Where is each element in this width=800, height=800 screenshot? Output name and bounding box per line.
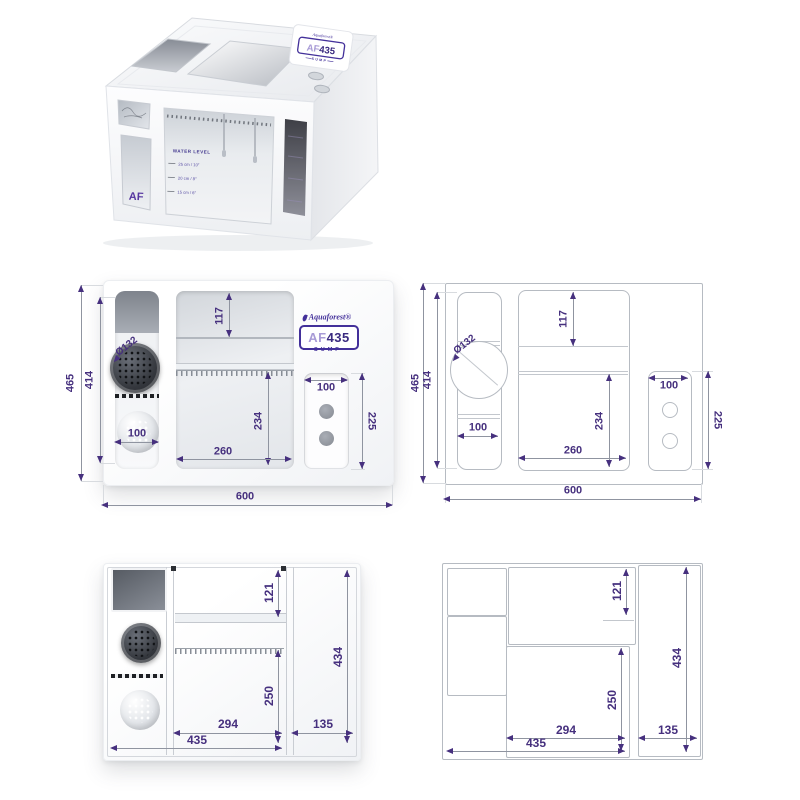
- chamber-line: [518, 371, 628, 372]
- dim-line: [100, 297, 101, 463]
- chamber-line: [457, 414, 500, 415]
- divider-wall: [173, 567, 174, 755]
- dim-arrow: [618, 648, 624, 655]
- dim-arrow: [570, 292, 576, 299]
- extension-line: [437, 468, 457, 469]
- dim-arrow: [101, 502, 108, 508]
- dim-label-left-section-width: 435: [187, 734, 207, 746]
- dim-label-sock-chamber-width: 100: [128, 429, 146, 440]
- dim-arrow: [420, 476, 426, 483]
- dim-line: [268, 372, 269, 465]
- extension-line: [423, 283, 445, 284]
- water-level-mark: 25 cm / 10″: [178, 162, 200, 168]
- dim-arrow: [570, 339, 576, 346]
- divider-wall: [293, 567, 294, 755]
- dim-line: [445, 499, 701, 500]
- top-view-render: 121 250 294 435 434 135: [85, 553, 395, 778]
- series-label: SUMP: [314, 347, 342, 353]
- dim-arrow: [606, 374, 612, 381]
- dim-line: [293, 733, 353, 734]
- filter-media-ball: [120, 690, 160, 730]
- dim-label-main-chamber-width: 294: [218, 718, 238, 730]
- dim-arrow: [518, 455, 525, 461]
- dim-line: [103, 505, 392, 506]
- media-grate: [115, 394, 159, 398]
- extension-line: [100, 463, 115, 464]
- dim-label-drip-tray-height: 117: [559, 310, 570, 328]
- dim-arrow: [344, 570, 350, 577]
- dim-arrow: [681, 375, 688, 381]
- bulkhead-hole: [662, 402, 678, 418]
- dim-arrow: [359, 373, 365, 380]
- dim-arrow: [344, 736, 350, 743]
- dim-arrow: [97, 456, 103, 463]
- dim-arrow: [457, 433, 464, 439]
- chamber-opening: [115, 291, 159, 333]
- dim-arrow: [618, 748, 625, 754]
- dim-arrow: [97, 297, 103, 304]
- dim-arrow: [78, 285, 84, 292]
- dim-line: [448, 751, 625, 752]
- dim-label-pump-recess-height: 225: [712, 411, 723, 429]
- main-chamber: [176, 291, 294, 469]
- dim-arrow: [275, 610, 281, 617]
- dim-line: [362, 373, 363, 469]
- dim-label-main-chamber-height: 234: [595, 412, 606, 430]
- dim-arrow: [226, 330, 232, 337]
- top-brand-badge: Aquaforest® AF435 SUMP: [289, 24, 354, 72]
- render-3d-image: Aquaforest® AF435 SUMP AF WATER LEVEL 25…: [88, 4, 388, 254]
- dim-label-main-chamber-width: 294: [556, 724, 576, 736]
- dim-label-pump-recess-width: 100: [660, 381, 678, 392]
- dim-line: [437, 292, 438, 468]
- ground-shadow: [103, 235, 373, 251]
- dim-line: [81, 285, 82, 481]
- dim-label-main-chamber-width: 260: [214, 447, 232, 458]
- extension-line: [81, 285, 103, 286]
- sensor-float: [253, 156, 257, 163]
- dim-line: [178, 459, 290, 460]
- dim-arrow: [275, 650, 281, 657]
- dim-arrow: [285, 456, 292, 462]
- dim-arrow: [705, 371, 711, 378]
- dim-label-drip-tray-height: 117: [215, 307, 226, 325]
- extension-line: [423, 483, 445, 484]
- dim-line: [573, 292, 574, 346]
- dim-arrow: [618, 735, 625, 741]
- dim-label-inner-depth: 434: [332, 647, 344, 667]
- dim-arrow: [506, 735, 513, 741]
- dim-arrow: [152, 439, 159, 445]
- glass-shelf: [175, 613, 286, 623]
- dim-arrow: [78, 474, 84, 481]
- dim-line: [708, 371, 709, 469]
- dim-arrow: [446, 748, 453, 754]
- dim-label-total-width: 600: [564, 486, 582, 497]
- divider-notch: [171, 566, 176, 571]
- glass-shelf: [176, 363, 294, 370]
- dim-arrow: [623, 608, 629, 615]
- dim-label-pump-recess-width: 100: [317, 383, 335, 394]
- bulkhead-hole: [319, 404, 334, 419]
- dim-label-total-width: 600: [236, 492, 254, 503]
- dim-arrow: [443, 496, 450, 502]
- dim-label-main-chamber-depth: 250: [606, 690, 618, 710]
- weir-comb: [176, 370, 294, 376]
- chamber-line: [518, 346, 628, 347]
- dim-arrow: [265, 372, 271, 379]
- dim-label-inner-height: 414: [85, 371, 96, 389]
- dim-arrow: [110, 745, 117, 751]
- dim-arrow: [275, 745, 282, 751]
- front-view-render: Ø132 100 117 234 260 Aquaforest® AF435 S…: [63, 275, 413, 523]
- front-window-small: [118, 100, 150, 129]
- dim-label-outer-height: 465: [411, 374, 422, 392]
- media-grate: [111, 674, 163, 678]
- extension-line: [692, 469, 713, 470]
- series-dash-right: [344, 349, 352, 350]
- dim-label-outer-height: 465: [66, 374, 77, 392]
- dim-label-main-chamber-depth: 250: [263, 686, 275, 706]
- dim-arrow: [275, 730, 282, 736]
- dim-arrow: [491, 433, 498, 439]
- dim-arrow: [434, 461, 440, 468]
- sock-chamber: [447, 616, 507, 696]
- sensor-float: [222, 150, 226, 157]
- inlet-chamber: [447, 568, 507, 616]
- series-dash-left: [303, 349, 311, 350]
- brand-script: Aquaforest®: [303, 313, 351, 322]
- dim-arrow: [386, 502, 393, 508]
- dim-arrow: [606, 460, 612, 467]
- top-view-drawing: 121 250 294 435 434 135: [437, 553, 777, 778]
- dim-label-main-chamber-height: 234: [254, 412, 265, 430]
- extension-line: [701, 483, 702, 503]
- dim-arrow: [694, 496, 701, 502]
- dim-arrow: [173, 730, 180, 736]
- dim-arrow: [341, 377, 348, 383]
- shelf-chamber: [508, 567, 636, 645]
- brand-name-text: Aquaforest®: [309, 313, 351, 322]
- dim-arrow: [705, 462, 711, 469]
- chamber-line: [457, 418, 500, 419]
- dim-line: [112, 748, 282, 749]
- dim-arrow: [619, 455, 626, 461]
- dim-arrow: [176, 456, 183, 462]
- dim-label-inner-height: 414: [423, 371, 434, 389]
- dim-arrow: [683, 745, 689, 752]
- divider-wall: [286, 567, 287, 755]
- dim-line: [347, 570, 348, 743]
- dim-line: [686, 567, 687, 752]
- dim-arrow: [638, 735, 645, 741]
- model-number: 435: [327, 330, 350, 345]
- dim-label-shelf-depth: 121: [611, 581, 623, 601]
- dim-arrow: [683, 567, 689, 574]
- dim-arrow: [226, 293, 232, 300]
- inlet-chamber: [111, 568, 167, 612]
- dim-arrow: [420, 283, 426, 290]
- dim-arrow: [304, 377, 311, 383]
- product-dimension-sheet: Aquaforest® AF435 SUMP AF WATER LEVEL 25…: [0, 0, 800, 800]
- filter-sock: [121, 623, 161, 663]
- leaf-icon: [302, 314, 308, 322]
- divider-notch: [281, 566, 286, 571]
- dim-arrow: [291, 730, 298, 736]
- dim-arrow: [346, 730, 353, 736]
- dim-line: [520, 458, 626, 459]
- dim-arrow: [275, 570, 281, 577]
- dim-line: [609, 374, 610, 467]
- model-prefix: AF: [308, 330, 326, 345]
- shelf-edge-line: [603, 620, 634, 621]
- weir-comb: [175, 648, 284, 654]
- dim-line: [640, 738, 697, 739]
- front-view-drawing: Ø132 100 117 234 260 100 2: [413, 275, 770, 523]
- water-level-mark: 20 cm / 8″: [178, 176, 197, 182]
- dim-label-inner-depth: 434: [671, 648, 683, 668]
- dim-label-shelf-depth: 121: [263, 583, 275, 603]
- dim-label-pump-recess-height: 225: [366, 412, 377, 430]
- dim-label-return-section-width: 135: [658, 724, 678, 736]
- dim-label-left-section-width: 435: [526, 737, 546, 749]
- dim-arr: [690, 735, 697, 741]
- dim-arrow: [648, 375, 655, 381]
- dim-arrow: [114, 439, 121, 445]
- drip-tray-edge: [176, 337, 294, 339]
- extension-line: [81, 481, 103, 482]
- dim-arrow: [275, 736, 281, 743]
- dim-arrow: [623, 569, 629, 576]
- water-level-mark: 15 cm / 6″: [177, 190, 196, 196]
- dim-label-sock-chamber-width: 100: [469, 423, 487, 434]
- dim-label-return-section-width: 135: [313, 718, 333, 730]
- extension-line: [437, 292, 457, 293]
- bulkhead-hole: [319, 431, 334, 446]
- bulkhead-hole: [662, 433, 678, 449]
- extension-line: [351, 469, 365, 470]
- render-3d-view: Aquaforest® AF435 SUMP AF WATER LEVEL 25…: [88, 4, 388, 254]
- dim-label-main-chamber-width: 260: [564, 446, 582, 457]
- dim-arrow: [434, 292, 440, 299]
- side-monogram: AF: [129, 191, 145, 204]
- dim-arrow: [359, 462, 365, 469]
